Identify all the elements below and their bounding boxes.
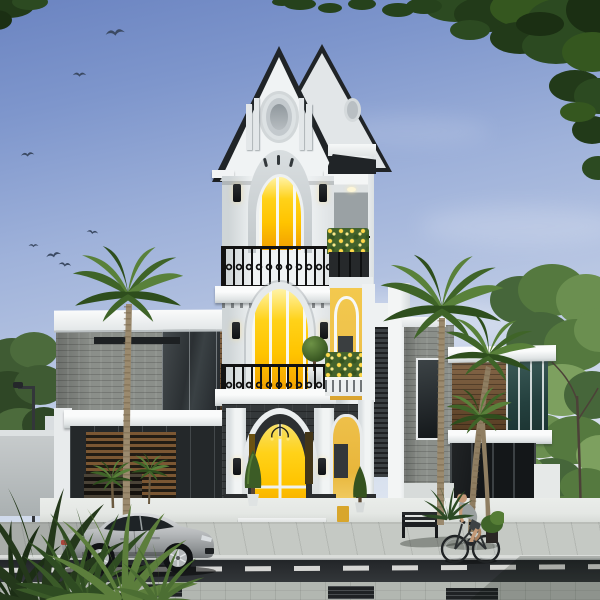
architectural-rendering: 3D exterior render of a narrow four-stor… — [0, 0, 600, 600]
foreground-plants — [0, 0, 600, 600]
